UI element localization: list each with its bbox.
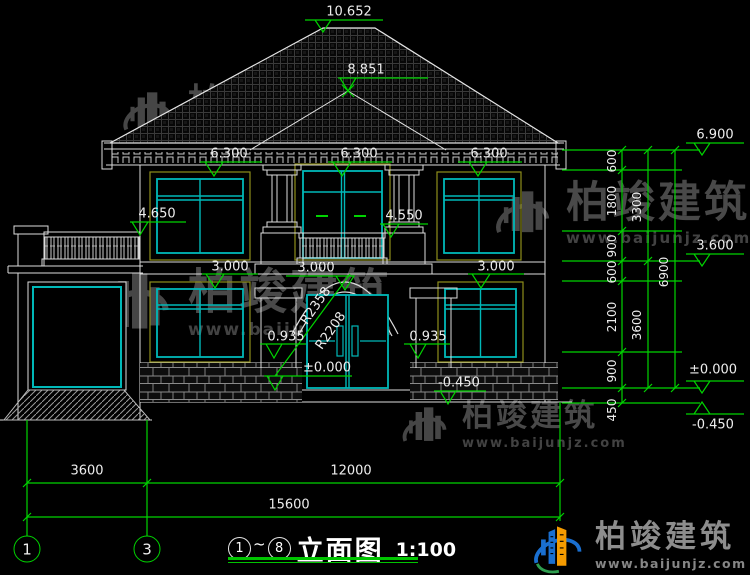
elevation-linework xyxy=(0,0,750,575)
dim-right-6900: 6900 xyxy=(658,257,670,288)
elev-label-floor-zero: ±0.000 xyxy=(303,362,351,375)
elev-label-ground-center: -0.450 xyxy=(438,377,480,390)
dim-right-1800: 1800 xyxy=(606,186,618,217)
dim-right-3600: 3600 xyxy=(631,310,643,341)
main-hip-roof xyxy=(110,28,558,150)
elev-label-right-3600: 3.600 xyxy=(696,240,733,253)
driveway-ramp xyxy=(4,390,150,420)
elev-label-head2-right: 6.300 xyxy=(470,148,507,161)
dim-bottom-3600: 3600 xyxy=(70,465,103,478)
title-underline-thin xyxy=(228,562,418,563)
elev-label-sill-right: 0.935 xyxy=(409,331,446,344)
dim-right-900a: 900 xyxy=(606,235,618,258)
dim-right-2100: 2100 xyxy=(606,302,618,333)
dim-right-3300: 3300 xyxy=(631,192,643,223)
cad-elevation-drawing: 柏竣建筑 www.baijunjz.com 柏竣建筑 www.baijunjz.… xyxy=(0,0,750,575)
grid-bubble-1: 1 xyxy=(14,536,41,563)
footer-logo-url: www.baijunjz.com xyxy=(595,556,747,571)
grid-bubble-3: 3 xyxy=(134,536,161,563)
elev-label-head2-center: 6.300 xyxy=(340,148,377,161)
elev-label-ridge: 10.652 xyxy=(326,6,372,19)
garage xyxy=(4,273,150,420)
porch-column-left xyxy=(261,165,303,264)
elev-label-eave-right: 6.900 xyxy=(696,129,733,142)
elev-label-head1-right: 3.000 xyxy=(477,261,514,274)
dim-bottom-12000: 12000 xyxy=(330,465,371,478)
window-2f-right xyxy=(437,172,521,260)
elev-label-balcony: 4.550 xyxy=(385,210,422,223)
elev-label-head1-left: 3.000 xyxy=(211,261,248,274)
dim-right-900b: 900 xyxy=(606,360,618,383)
footer-logo: 柏竣建筑 www.baijunjz.com xyxy=(527,517,747,575)
elev-label-right-neg: -0.450 xyxy=(692,419,734,432)
terrace-balustrade xyxy=(8,226,143,273)
elev-label-head1-center: 3.000 xyxy=(297,262,334,275)
dim-right-600b: 600 xyxy=(606,261,618,284)
dim-right-450: 450 xyxy=(606,399,618,422)
elev-label-right-zero: ±0.000 xyxy=(689,364,737,377)
title-tilde: ~ xyxy=(253,535,266,553)
elev-label-terrace: 4.650 xyxy=(138,208,175,221)
window-1f-left xyxy=(150,282,250,362)
dim-right-600a: 600 xyxy=(606,150,618,173)
balcony-balustrade xyxy=(255,233,432,274)
elev-label-sill-left: 0.935 xyxy=(267,331,304,344)
footer-logo-icon xyxy=(527,517,587,575)
title-underline xyxy=(228,557,418,560)
footer-logo-text: 柏竣建筑 xyxy=(595,522,747,553)
elev-label-head2-left: 6.300 xyxy=(210,148,247,161)
elev-label-porch-ridge: 8.851 xyxy=(347,64,384,77)
dim-bottom-15600: 15600 xyxy=(268,499,309,512)
